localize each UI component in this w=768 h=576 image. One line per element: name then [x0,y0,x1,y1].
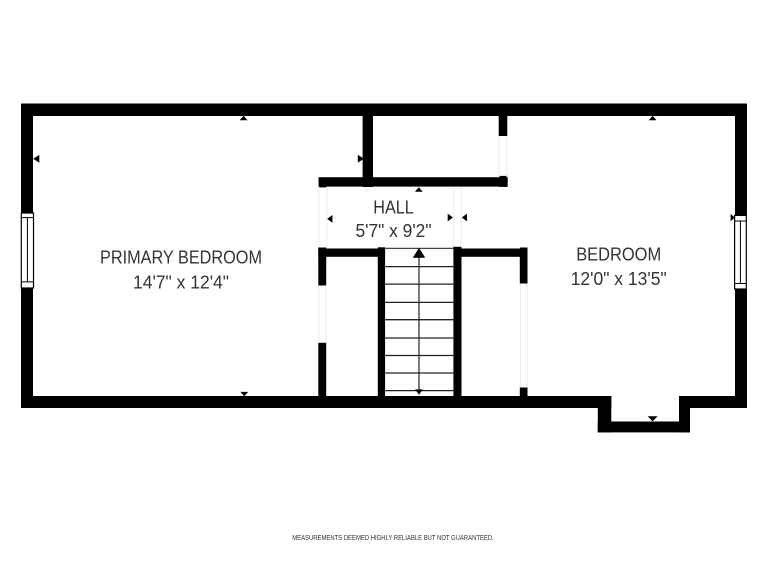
svg-text:MEASUREMENTS DEEMED HIGHLY REL: MEASUREMENTS DEEMED HIGHLY RELIABLE BUT … [292,533,494,542]
svg-text:5'7" x 9'2": 5'7" x 9'2" [356,220,432,241]
svg-text:HALL: HALL [373,196,414,217]
svg-text:12'0" x 13'5": 12'0" x 13'5" [571,268,667,289]
svg-text:PRIMARY BEDROOM: PRIMARY BEDROOM [100,247,262,268]
svg-text:BEDROOM: BEDROOM [576,243,661,264]
svg-text:14'7" x 12'4": 14'7" x 12'4" [133,272,229,293]
